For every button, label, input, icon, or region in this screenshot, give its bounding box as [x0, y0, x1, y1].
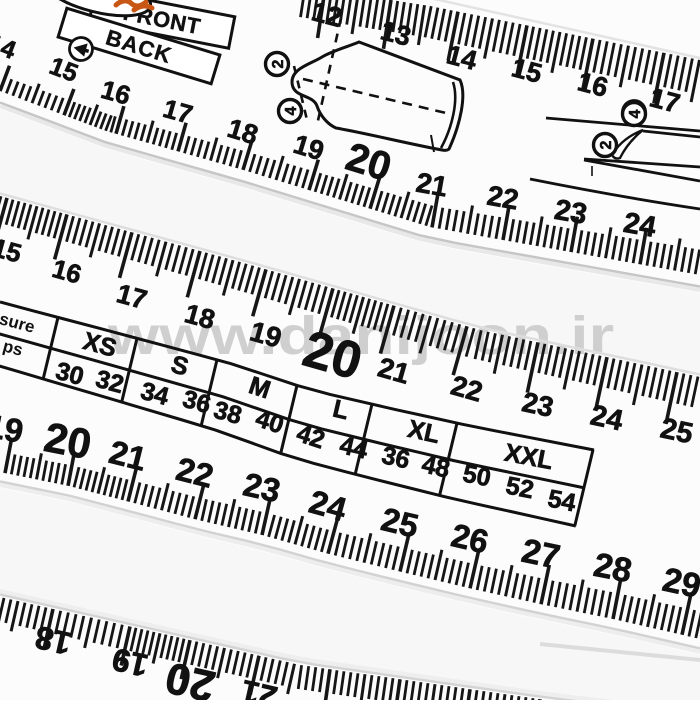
svg-text:25: 25 — [658, 412, 696, 450]
svg-text:2: 2 — [270, 59, 287, 68]
svg-text:24: 24 — [621, 207, 658, 244]
svg-text:4: 4 — [627, 109, 644, 118]
svg-text:24: 24 — [588, 399, 626, 437]
svg-text:27: 27 — [518, 532, 563, 577]
svg-text:23: 23 — [519, 386, 556, 423]
svg-text:36: 36 — [379, 441, 412, 474]
svg-text:50: 50 — [460, 460, 493, 493]
svg-text:29: 29 — [659, 561, 700, 606]
svg-text:54: 54 — [545, 485, 578, 518]
svg-text:28: 28 — [591, 546, 635, 591]
svg-text:20: 20 — [41, 413, 96, 468]
svg-text:22: 22 — [485, 180, 521, 216]
svg-text:23: 23 — [552, 194, 589, 231]
svg-text:52: 52 — [503, 472, 536, 505]
svg-text:21: 21 — [414, 167, 450, 203]
svg-text:2: 2 — [598, 140, 615, 149]
svg-text:4: 4 — [283, 106, 300, 115]
